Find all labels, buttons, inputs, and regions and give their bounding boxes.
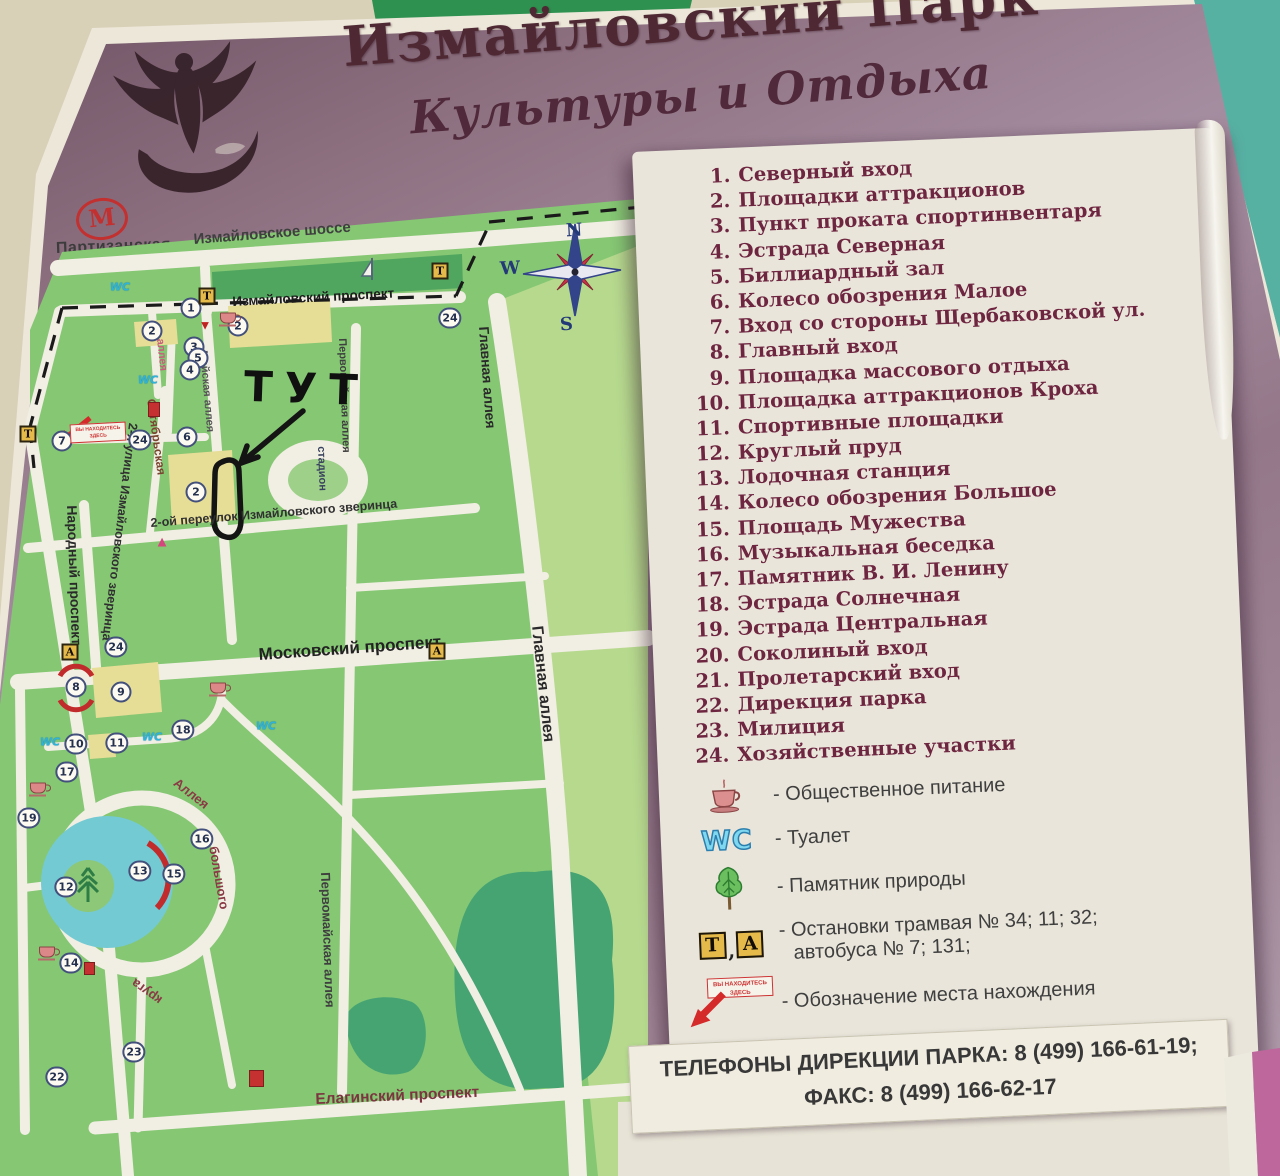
transit-stop-icon-А: А: [62, 644, 79, 661]
legend-item-number: 19.: [693, 618, 730, 642]
map-marker-6: 6: [177, 427, 198, 448]
transit-stop-icon-Т: Т: [199, 288, 216, 305]
entrance-marker-icon: ▼: [199, 318, 212, 333]
compass-south-label: S: [559, 314, 573, 336]
street-label-9: Народный проспект: [64, 505, 85, 645]
map-marker-24: 24: [104, 637, 127, 658]
legend-item-number: 1.: [694, 164, 731, 188]
wc-map-label: WC: [110, 281, 130, 294]
street-label-5: Московский проспект: [258, 632, 442, 665]
legend-item-number: 16.: [693, 542, 730, 566]
wc-map-label: WC: [40, 736, 60, 749]
entrance-arrow-icon: ▲: [155, 534, 170, 551]
compass-north-label: N: [565, 220, 583, 242]
map-marker-23: 23: [122, 1042, 145, 1063]
street-label-7: 2-ой переулок Измайловского зверинца: [150, 497, 398, 530]
map-marker-15: 15: [162, 864, 185, 885]
wc-map-label: WC: [142, 731, 162, 744]
map-marker-22: 22: [45, 1067, 68, 1088]
legend-item-number: 6.: [694, 290, 731, 314]
legend-item-number: 8.: [694, 340, 731, 364]
transit-stop-icon-Т: Т: [20, 426, 37, 443]
map-marker-2: 2: [142, 321, 163, 342]
legend-item-number: 11.: [693, 416, 730, 440]
cup-icon: [676, 777, 773, 817]
food-icon: [39, 947, 55, 958]
street-label-16: Аллея: [171, 775, 212, 812]
tram-bus-stop-icon: Т,А: [683, 929, 780, 960]
legend-item-number: 22.: [693, 693, 730, 717]
legend-wc-text: - Туалет: [774, 824, 850, 850]
stop-separator: ,: [728, 938, 736, 962]
street-label-4: Главная аллея: [527, 625, 557, 743]
food-icon: [220, 313, 236, 324]
legend-location-text: - Обозначение места нахождения: [781, 977, 1096, 1013]
red-arrow-icon: [687, 990, 733, 1032]
map-marker-12: 12: [54, 877, 77, 898]
legend-item-number: 10.: [694, 391, 731, 415]
street-label-17: большого: [206, 845, 232, 910]
wc-icon: WC: [678, 823, 775, 858]
map-marker-11: 11: [105, 733, 128, 754]
legend-item-number: 9.: [694, 366, 731, 390]
street-label-18: круга: [128, 976, 164, 1008]
street-label-1: Измайловское шоссе: [193, 219, 351, 248]
legend-numbered-list: 1.Северный вход2.Площадки аттракционов3.…: [669, 144, 1232, 770]
transit-stop-icon-Т: Т: [432, 263, 449, 280]
transit-stop-icon-А: А: [429, 643, 446, 660]
food-icon: [30, 783, 46, 794]
you-are-here-map-box: ВЫ НАХОДИТЕСЬ ЗДЕСЬ: [70, 422, 127, 444]
map-marker-24: 24: [438, 308, 461, 329]
legend-stops-text: - Остановки трамвая № 34; 11; 32; автобу…: [778, 906, 1099, 965]
building-icon: [84, 962, 95, 975]
legend-tree-text: - Памятник природы: [776, 867, 966, 898]
legend-item-number: 18.: [693, 593, 730, 617]
map-marker-19: 19: [17, 808, 40, 829]
food-icon: [210, 683, 226, 694]
legend-item-number: 7.: [694, 315, 731, 339]
legend-item-text: Милиция: [737, 714, 845, 741]
you-are-here-icon: ВЫ НАХОДИТЕСЬ ЗДЕСЬ: [685, 974, 783, 1034]
compass-west-label: W: [499, 257, 520, 279]
street-label-6: Елагинский проспект: [315, 1084, 480, 1109]
street-label-8: 2-я улица Измайловского зверинца: [99, 422, 140, 641]
street-label-3: Главная аллея: [476, 326, 499, 429]
legend-item-number: 2.: [694, 189, 731, 213]
map-marker-13: 13: [128, 861, 151, 882]
street-label-2: Измайловский проспект: [232, 286, 394, 309]
building-icon: [249, 1070, 264, 1087]
map-marker-8: 8: [66, 677, 87, 698]
legend-item-number: 23.: [693, 719, 730, 743]
legend-item-number: 3.: [694, 214, 731, 238]
legend-item-number: 13.: [693, 466, 730, 490]
map-marker-24: 24: [128, 430, 151, 451]
street-label-15: стадион: [315, 446, 329, 491]
legend-item-number: 17.: [693, 567, 730, 591]
map-marker-14: 14: [59, 953, 82, 974]
wc-map-label: WC: [138, 374, 158, 387]
legend-item-number: 21.: [693, 668, 730, 692]
building-icon: [148, 402, 160, 417]
map-marker-9: 9: [111, 682, 132, 703]
bus-stop-letter: А: [736, 930, 764, 958]
tram-stop-letter: Т: [698, 931, 726, 959]
legend-item-number: 20.: [693, 643, 730, 667]
legend-item-number: 14.: [693, 492, 730, 516]
map-marker-18: 18: [171, 720, 194, 741]
legend-sheet: 1.Северный вход2.Площадки аттракционов3.…: [632, 127, 1260, 1107]
wc-map-label: WC: [256, 720, 276, 733]
legend-item-number: 12.: [693, 441, 730, 465]
legend-item-number: 4.: [694, 240, 731, 264]
legend-item-number: 15.: [693, 517, 730, 541]
legend-food-text: - Общественное питание: [773, 773, 1006, 806]
map-marker-10: 10: [64, 734, 87, 755]
tut-annotation-text: ТУТ: [243, 362, 370, 415]
map-marker-2: 2: [186, 482, 207, 503]
map-marker-16: 16: [190, 829, 213, 850]
legend-item-number: 5.: [694, 265, 731, 289]
legend-item-number: 24.: [693, 744, 730, 768]
map-marker-17: 17: [55, 762, 78, 783]
tree-icon: [680, 864, 778, 914]
street-label-12: аллея: [154, 338, 169, 372]
park-map-photo: Измайловский Парк Культуры и Отдыха М Па…: [0, 0, 1280, 1176]
street-label-14: Первомайская аллея: [318, 872, 338, 1008]
map-marker-4: 4: [180, 360, 201, 381]
